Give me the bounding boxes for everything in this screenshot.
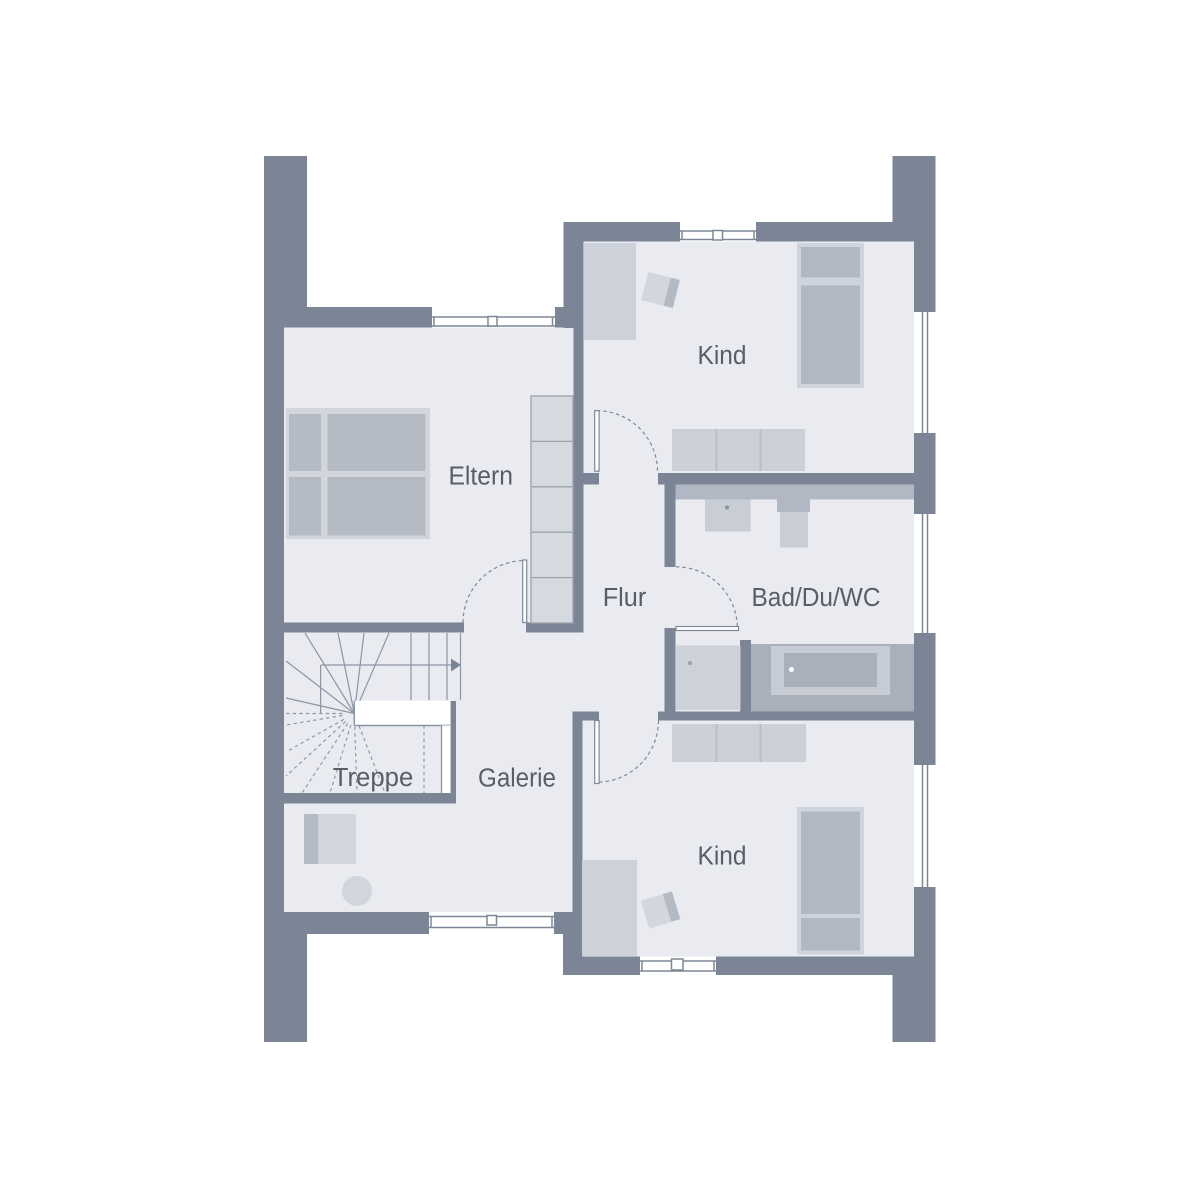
svg-text:Kind: Kind xyxy=(698,843,747,871)
svg-text:Galerie: Galerie xyxy=(478,765,556,793)
svg-text:Treppe: Treppe xyxy=(333,764,414,792)
svg-text:Bad/Du/WC: Bad/Du/WC xyxy=(752,584,881,612)
svg-text:Kind: Kind xyxy=(698,342,747,370)
svg-text:Flur: Flur xyxy=(603,584,647,612)
svg-text:Eltern: Eltern xyxy=(448,463,513,491)
